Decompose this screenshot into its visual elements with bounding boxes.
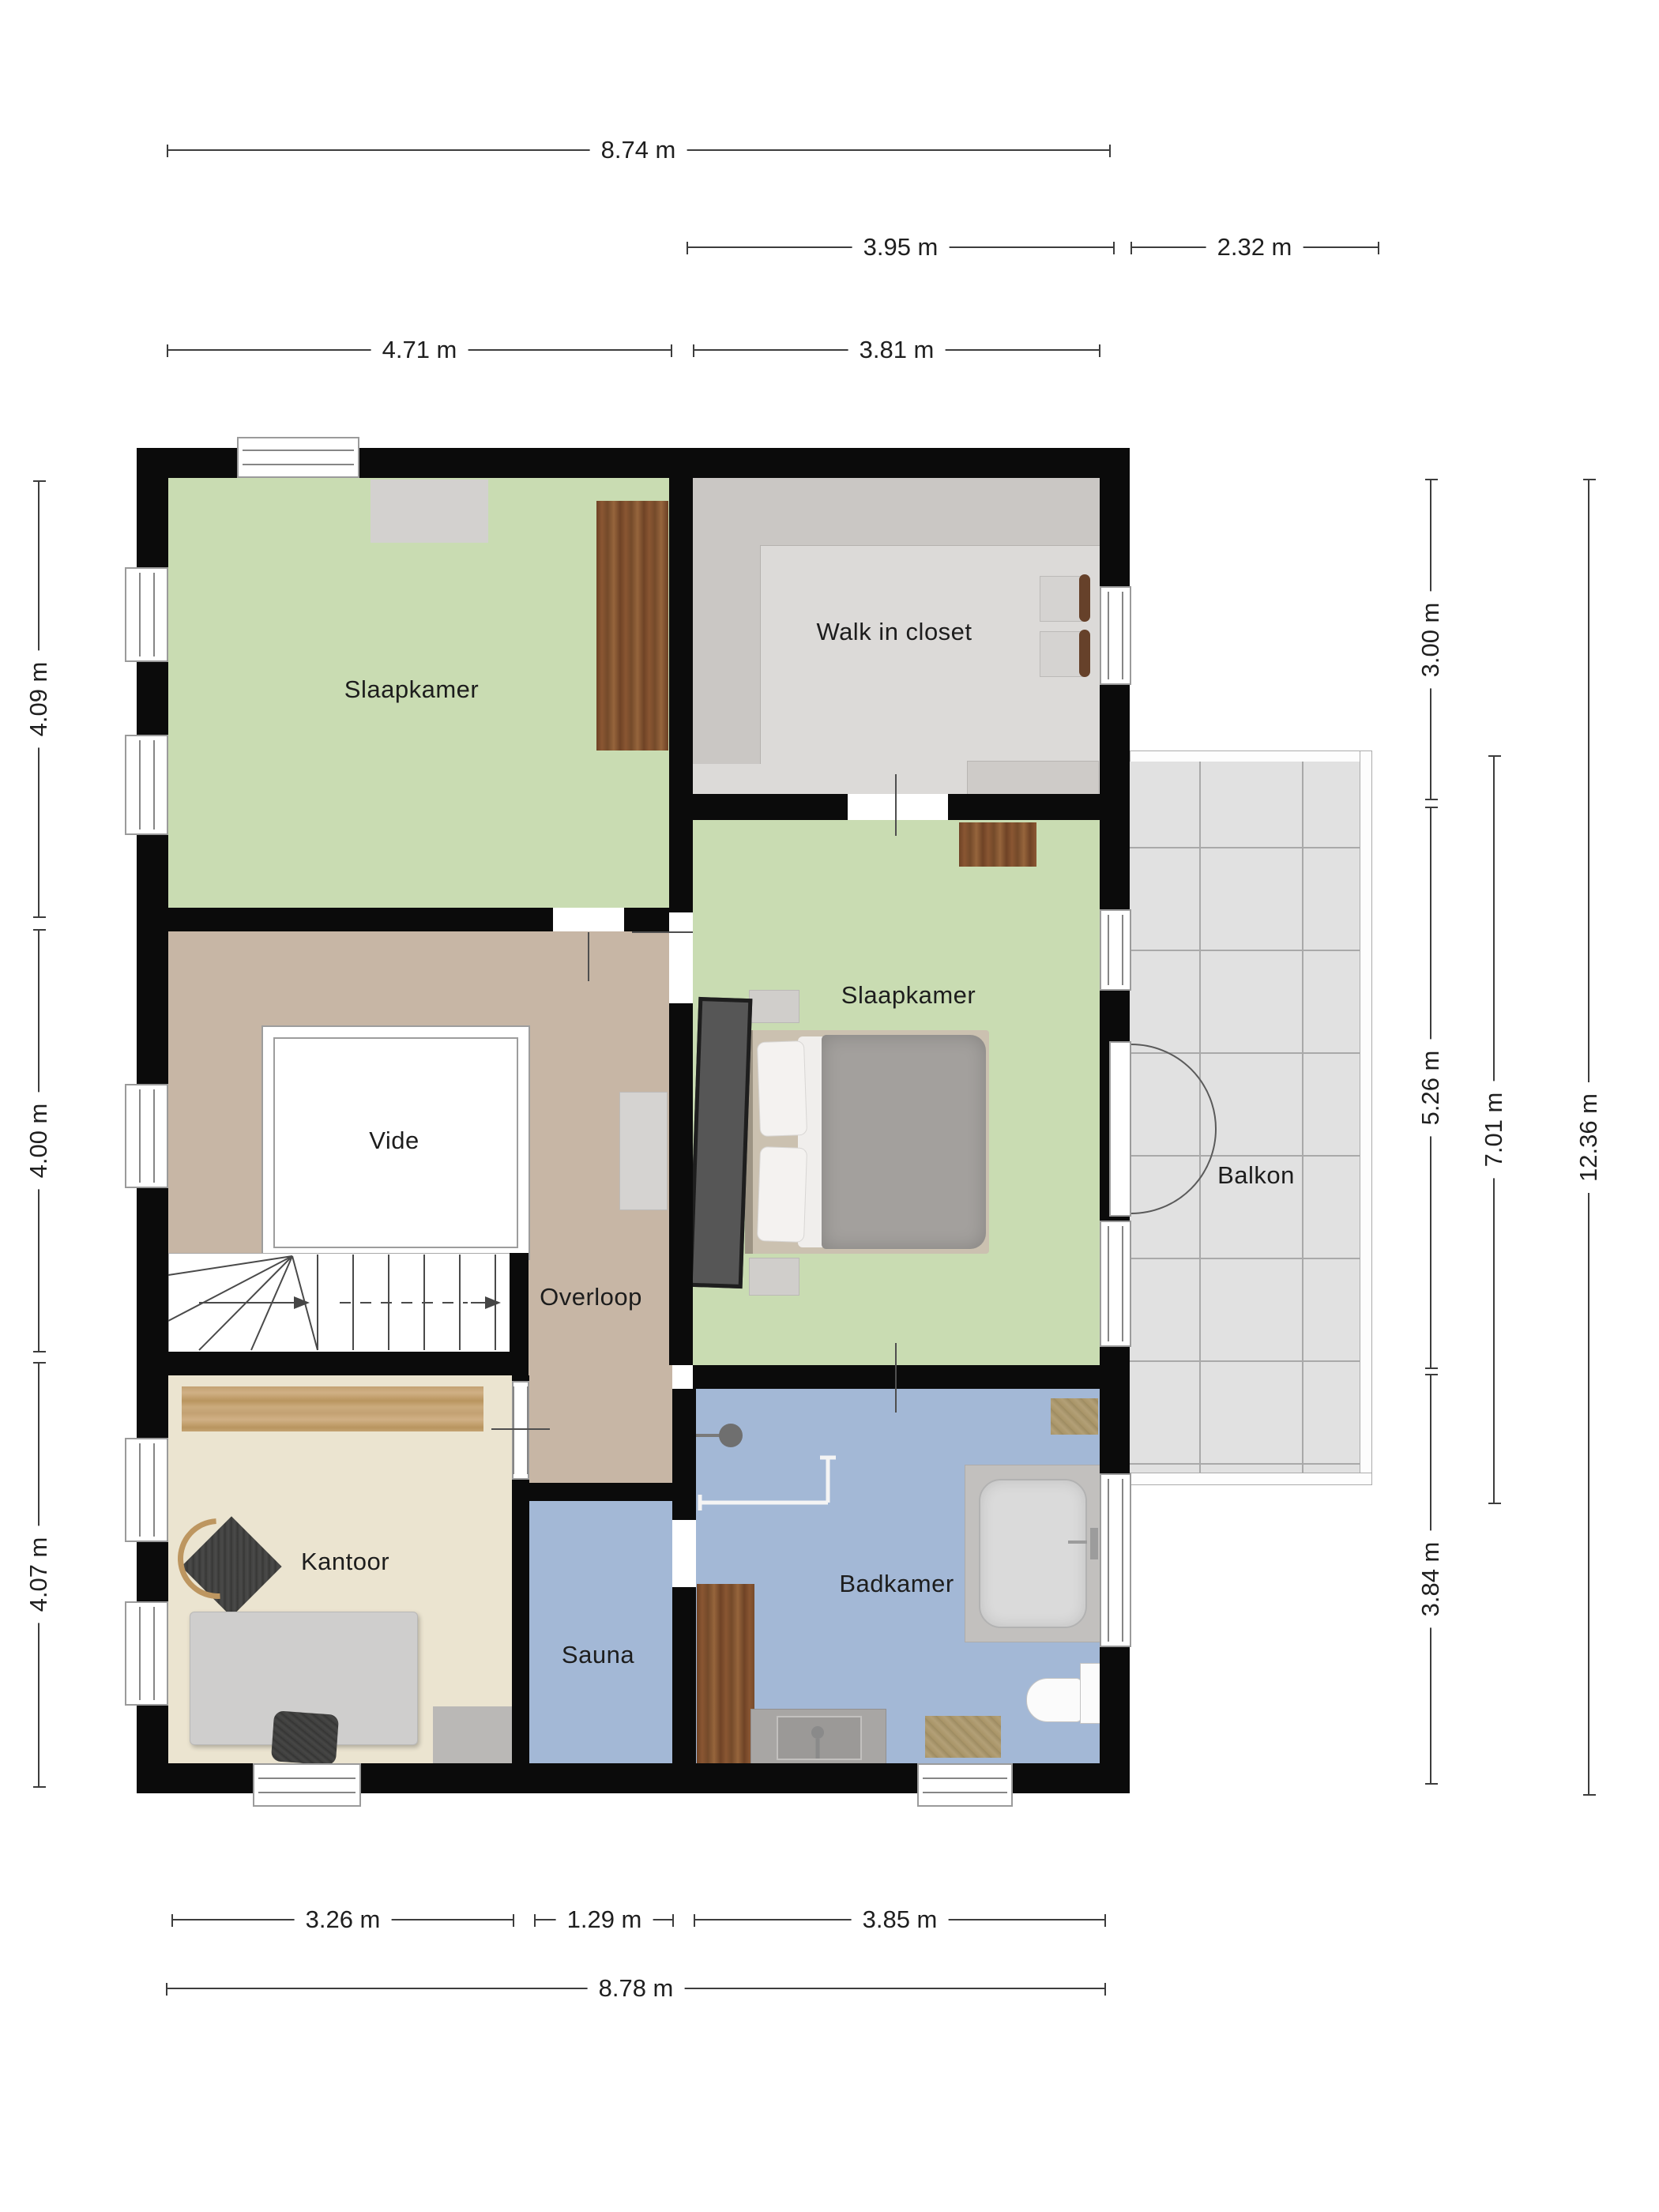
room-label-bedroom-top: Slaapkamer — [344, 675, 479, 704]
room-label-sauna: Sauna — [562, 1641, 634, 1669]
room-label-overloop: Overloop — [540, 1283, 642, 1311]
plan-symbols — [0, 0, 1659, 2212]
room-label-vide: Vide — [369, 1127, 419, 1155]
room-label-kantoor: Kantoor — [301, 1548, 389, 1576]
dim-label-bottom-height: 4.07 m — [23, 1526, 55, 1623]
room-label-bedroom-main: Slaapkamer — [841, 981, 976, 1010]
dim-label-bedroom-main-height: 5.26 m — [1415, 1040, 1446, 1137]
room-label-walk-in-closet: Walk in closet — [816, 618, 972, 646]
floor-plan-page: { "rooms": { "bedroom_top": "Slaapkamer"… — [0, 0, 1659, 2212]
dim-label-kantoor-width: 3.26 m — [295, 1904, 392, 1935]
dim-label-middle-height: 4.00 m — [23, 1093, 55, 1190]
dim-label-total-width-bottom: 8.78 m — [588, 1973, 685, 2004]
dim-label-total-height: 12.36 m — [1573, 1082, 1604, 1193]
dim-label-badkamer-height: 3.84 m — [1415, 1531, 1446, 1628]
dim-label-bedroom-top-height: 4.09 m — [23, 651, 55, 748]
dim-label-balcony-width: 2.32 m — [1206, 231, 1303, 263]
dim-label-badkamer-width: 3.85 m — [852, 1904, 949, 1935]
dim-label-balcony-height: 7.01 m — [1478, 1082, 1510, 1179]
dim-label-right-section-width: 3.95 m — [852, 231, 950, 263]
dim-label-bedroom-top-width: 4.71 m — [371, 334, 468, 366]
room-label-badkamer: Badkamer — [839, 1570, 954, 1598]
dim-label-sauna-width: 1.29 m — [556, 1904, 653, 1935]
dim-label-total-width-top: 8.74 m — [590, 134, 687, 166]
dim-label-closet-height: 3.00 m — [1415, 592, 1446, 689]
dim-label-right-rooms-width: 3.81 m — [848, 334, 946, 366]
